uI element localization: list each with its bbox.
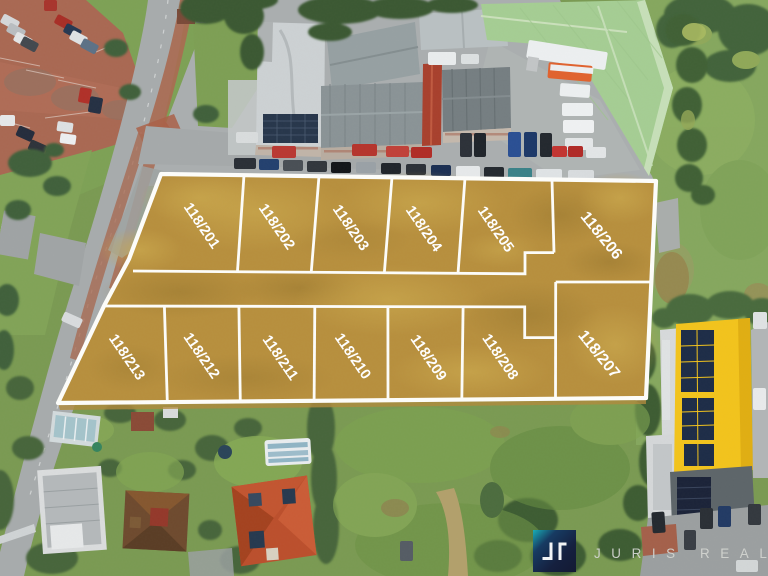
svg-text:JURIS REAL: JURIS REAL	[594, 546, 768, 561]
